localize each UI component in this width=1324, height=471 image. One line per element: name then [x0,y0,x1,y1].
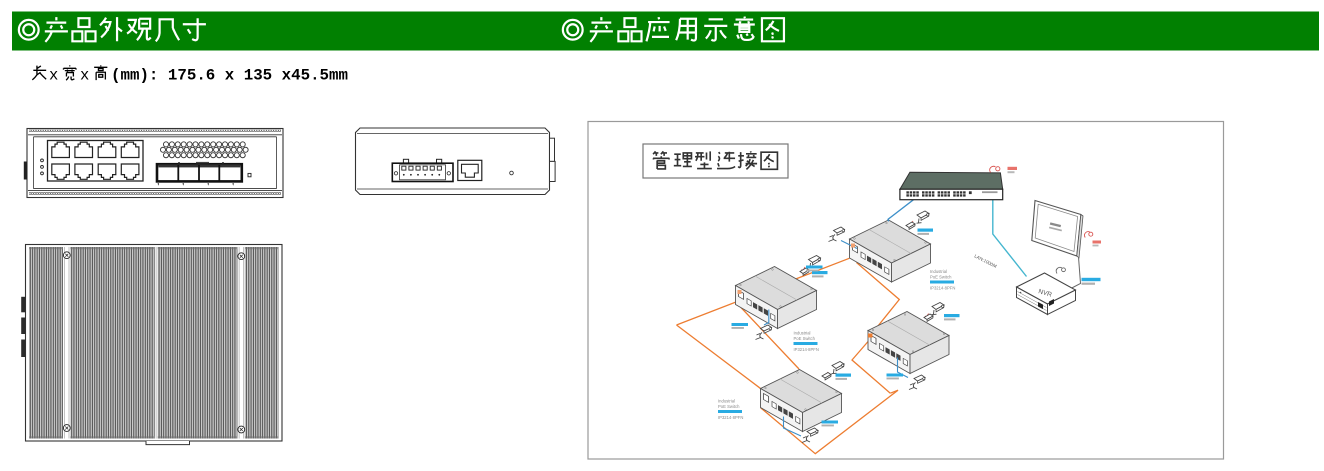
svg-text:Industrial: Industrial [718,399,735,404]
svg-text:x: x [49,67,58,85]
svg-text:x: x [80,67,89,85]
svg-text:(mm): 175.6 x 135 x45.5mm: (mm): 175.6 x 135 x45.5mm [111,67,348,85]
svg-text:IP3214·8PFN: IP3214·8PFN [930,286,955,291]
svg-text:IP3214·8PFN: IP3214·8PFN [794,347,819,352]
svg-text:Industrial: Industrial [930,269,947,274]
svg-text:PoE Switch: PoE Switch [718,404,740,409]
svg-text:PoE Switch: PoE Switch [930,275,952,280]
svg-text:IP3214·8PFN: IP3214·8PFN [718,415,743,420]
svg-text:Industrial: Industrial [794,331,811,336]
svg-text:PoE Switch: PoE Switch [794,336,816,341]
